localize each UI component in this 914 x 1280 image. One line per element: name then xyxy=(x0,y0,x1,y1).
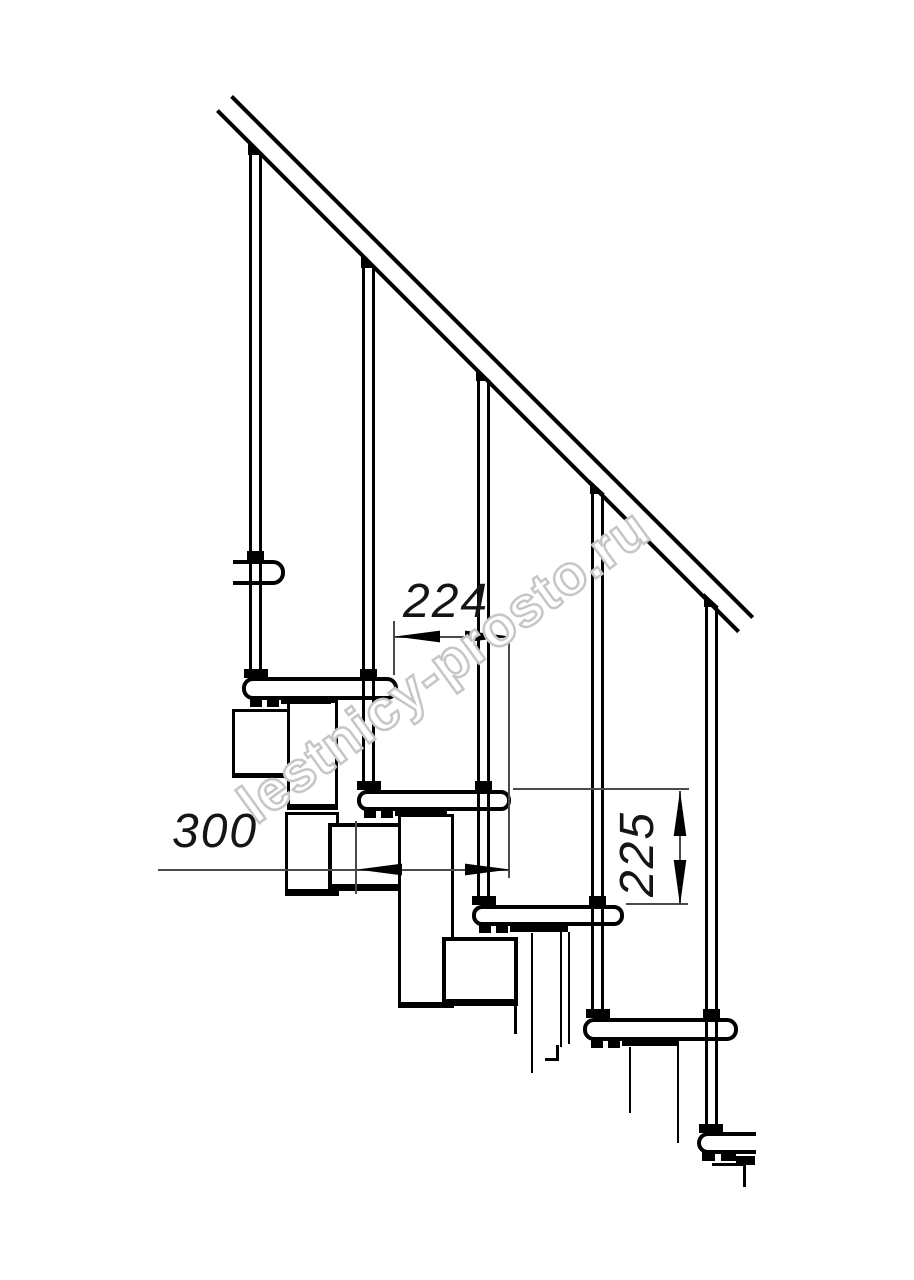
tread-4-bracket-foot xyxy=(591,1039,603,1048)
tread-5-break-line xyxy=(743,1166,746,1187)
baluster-2-base-mount xyxy=(357,781,381,790)
stringer-break-line xyxy=(677,1046,679,1143)
baluster-5-base-mount xyxy=(699,1124,723,1133)
tread-1-bracket-foot xyxy=(267,698,279,707)
stringer-break-line xyxy=(556,1045,559,1060)
dim-depth-line xyxy=(158,869,510,871)
tread-4-bracket-strip xyxy=(622,1039,679,1046)
tread-3-bracket-foot xyxy=(496,924,508,933)
tread-5-bracket-foot xyxy=(702,1152,715,1161)
baluster-3-base-mount xyxy=(472,896,496,905)
dim-rise-arrow-up xyxy=(673,791,687,836)
stringer-module-2 xyxy=(328,823,405,891)
stringer-break-line xyxy=(531,933,533,1073)
tread-3-bracket-foot xyxy=(479,924,491,933)
tread-2-bracket-foot xyxy=(364,809,376,818)
stringer-break-line xyxy=(514,1006,517,1034)
dim-depth-label: 300 xyxy=(172,804,258,859)
baluster-4-base-mount xyxy=(586,1009,610,1018)
dim-depth-extension-line xyxy=(355,821,357,894)
baluster-1-collar xyxy=(247,551,264,560)
tread-1-bracket-strip xyxy=(281,697,331,704)
tread-5-bracket-foot xyxy=(721,1152,736,1161)
tread-5-break-line xyxy=(712,1163,746,1166)
stringer-break-line xyxy=(629,1047,631,1113)
tread-2-bracket-foot xyxy=(381,809,393,818)
tread-1-bracket-foot xyxy=(250,698,262,707)
tread-5-partial xyxy=(697,1132,756,1154)
tread-3-bracket-strip xyxy=(510,924,568,932)
tread-2-bracket-strip xyxy=(395,809,447,816)
baluster-5-collar xyxy=(703,1009,720,1018)
stringer-break-line xyxy=(568,932,570,1044)
stringer-break-line xyxy=(560,932,562,1047)
staircase-drawing: 224 300 225 lestnicy-prosto.ru xyxy=(0,0,914,1280)
stringer-module-3 xyxy=(442,937,518,1006)
baluster-3-collar xyxy=(475,781,492,790)
baluster-4-collar xyxy=(589,896,606,905)
baluster-5 xyxy=(705,607,718,1133)
baluster-1-base-mount xyxy=(244,669,268,678)
dim-run-extension-line xyxy=(508,626,510,878)
dim-rise-arrow-down xyxy=(673,860,687,905)
dim-rise-label: 225 xyxy=(610,800,666,908)
baluster-1 xyxy=(249,155,262,678)
dim-rise-extension-line xyxy=(513,788,689,790)
tread-4-bracket-foot xyxy=(608,1039,620,1048)
